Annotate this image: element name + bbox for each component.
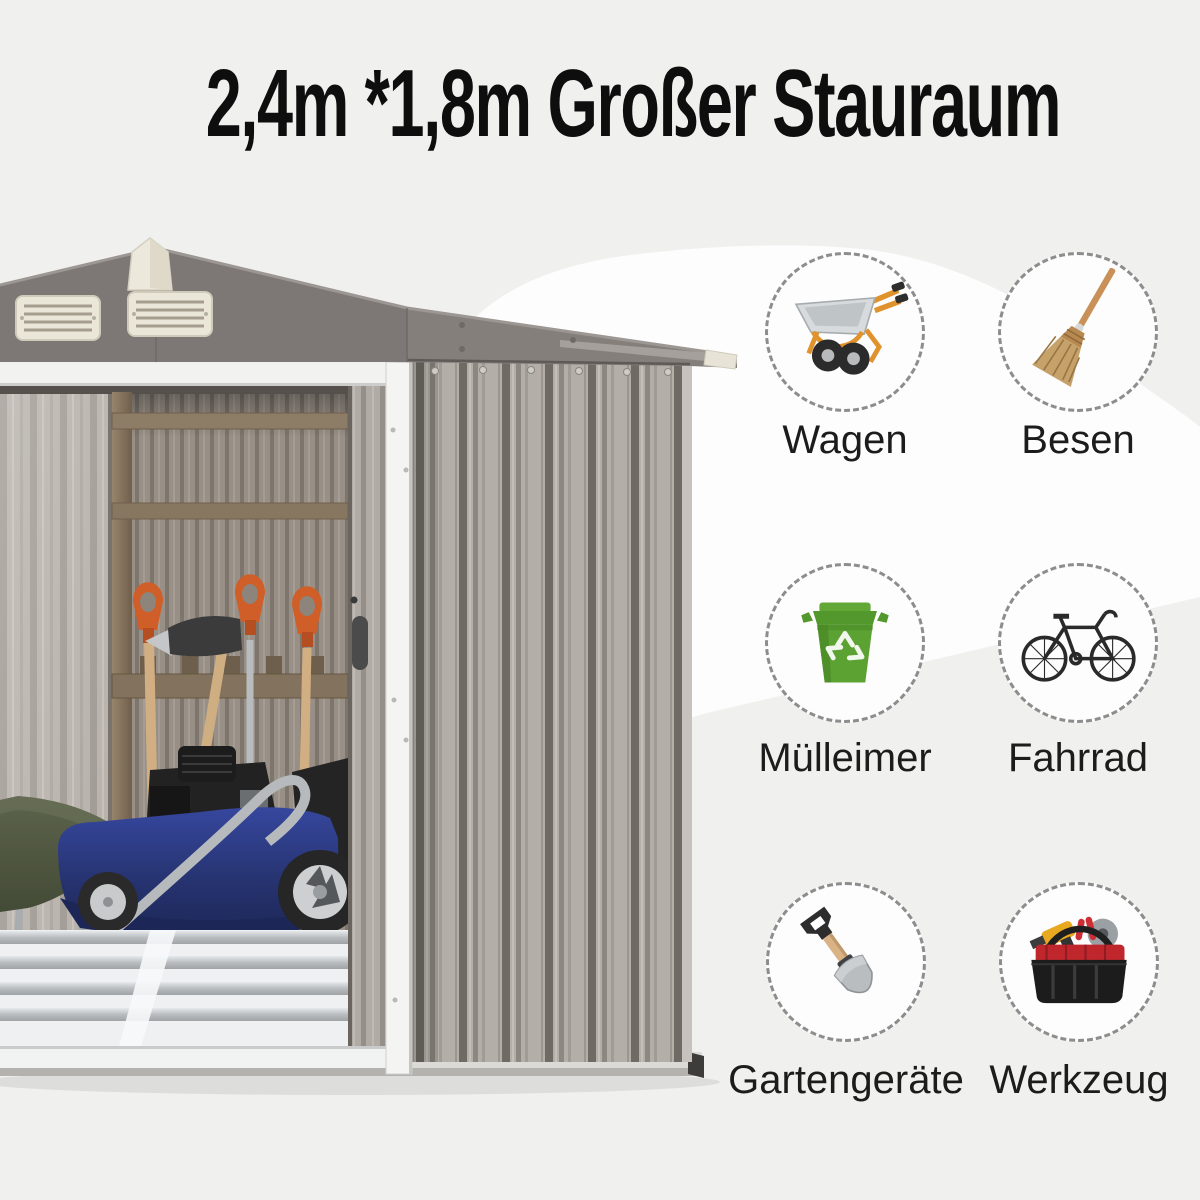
side-wall: [412, 362, 692, 1062]
vent-right: [128, 292, 212, 336]
door-keyhole: [351, 597, 358, 604]
item-label-muelleimer: Mülleimer: [715, 736, 975, 780]
item-circle-werkzeug: [999, 882, 1159, 1042]
trash-bin-icon: [781, 579, 909, 707]
corner-trim: [386, 362, 412, 1074]
product-infographic: 2,4m *1,8m Großer Stauraum: [0, 0, 1200, 1200]
sliding-door: [348, 386, 388, 1052]
bicycle-icon: [1011, 576, 1145, 710]
item-label-fahrrad: Fahrrad: [948, 736, 1200, 780]
item-label-wagen: Wagen: [715, 418, 975, 462]
toolbag-icon: [1014, 897, 1144, 1027]
broom-icon: [1014, 268, 1142, 396]
item-label-besen: Besen: [948, 418, 1200, 462]
doorway-interior: [0, 386, 362, 1052]
item-label-gartengeraete: Gartengeräte: [716, 1058, 976, 1102]
item-circle-besen: [998, 252, 1158, 412]
garden-shed: [0, 238, 737, 1078]
item-circle-fahrrad: [998, 563, 1158, 723]
page-title: 2,4m *1,8m Großer Stauraum: [0, 54, 1200, 155]
item-label-werkzeug: Werkzeug: [949, 1058, 1200, 1102]
door-top-frame: [0, 364, 388, 386]
page-title-text: 2,4m *1,8m Großer Stauraum: [206, 54, 1060, 155]
item-circle-gartengeraete: [766, 882, 926, 1042]
door-handle: [352, 616, 368, 670]
item-circle-wagen: [765, 252, 925, 412]
shovel-icon: [782, 898, 910, 1026]
floor-rails: [0, 930, 348, 1052]
item-circle-muelleimer: [765, 563, 925, 723]
wheelbarrow-icon: [781, 268, 909, 396]
vent-left: [16, 296, 100, 340]
